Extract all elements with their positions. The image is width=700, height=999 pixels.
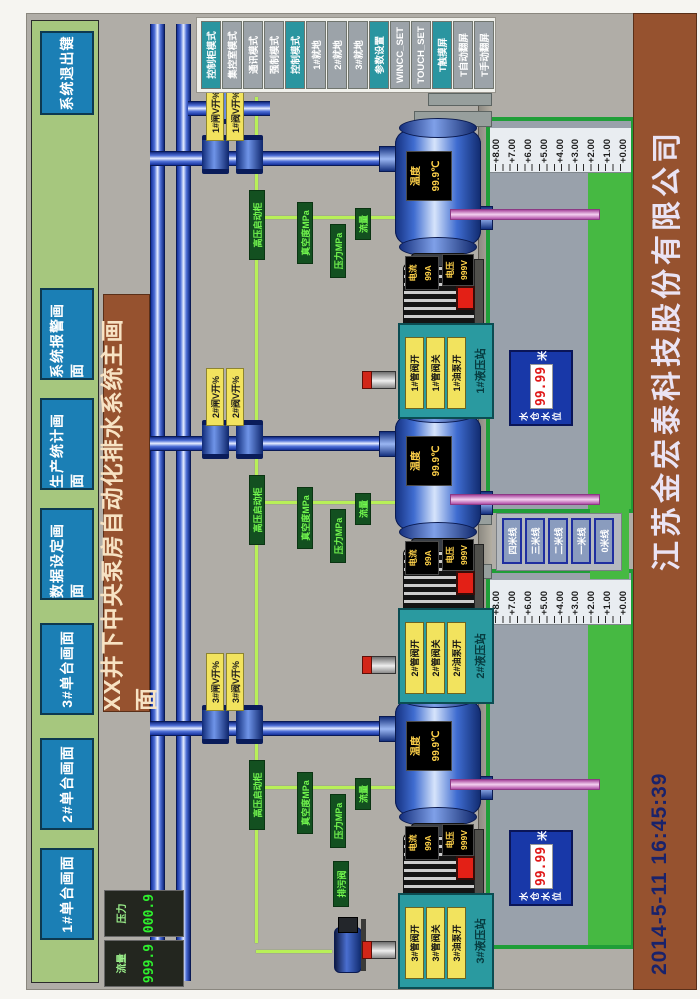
motor-status-lamp xyxy=(456,571,475,595)
instrument-label: 压力MPa xyxy=(330,509,346,563)
pump-temp-display: 温度99.9℃ xyxy=(406,721,452,771)
pump-discharge-nozzle xyxy=(379,431,396,457)
pump-temp-value: 99.9℃ xyxy=(427,437,447,485)
valve-open-label-b-3#: 3#阀V开% xyxy=(226,653,244,711)
pressure-gauge-value: 000.9 xyxy=(142,891,157,936)
pump-temp-value: 99.9℃ xyxy=(427,152,447,200)
mode-button-4[interactable]: 强制模式 xyxy=(264,21,284,89)
water-sump-2: +8.00+7.00+6.00+5.00+4.00+3.00+2.00+1.00… xyxy=(486,117,635,513)
level-scale: +8.00+7.00+6.00+5.00+4.00+3.00+2.00+1.00… xyxy=(490,128,631,173)
hydraulic-button-2#-2[interactable]: 2#管阀关 xyxy=(426,622,445,694)
hydraulic-station-title: 3#液压站 xyxy=(472,901,488,981)
scale-label: +5.00 xyxy=(540,130,550,163)
hydraulic-button-2#-3[interactable]: 2#油泵开 xyxy=(447,622,466,694)
readout-label-line1: 水仓 xyxy=(519,892,541,901)
instrument-label: 真空度MPa xyxy=(297,202,313,264)
hydraulic-station-1#: 1#管阀开1#管阀关1#油泵开1#液压站 xyxy=(398,323,494,419)
instrument-label: 真空度MPa xyxy=(297,772,313,834)
water-level-unit: 米 xyxy=(534,351,549,361)
level-scale-labels: +8.00+7.00+6.00+5.00+4.00+3.00+2.00+1.00… xyxy=(492,582,629,615)
instrument-label: 压力MPa xyxy=(330,794,346,848)
company-name: 江苏金宏泰科技股份有限公司 xyxy=(642,111,688,571)
pump-discharge-nozzle xyxy=(379,716,396,742)
mode-button-panel: 控制柜模式集控室模式通讯模式强制模式控制模式1#就地2#就地3#就地参数设置WI… xyxy=(196,17,496,93)
drain-signal-line xyxy=(256,950,332,953)
motor-current-value: 99A xyxy=(421,257,436,289)
level-line-button-2[interactable]: 三米线 xyxy=(525,518,545,564)
hydraulic-button-1#-2[interactable]: 1#管阀关 xyxy=(426,337,445,409)
scale-label: +4.00 xyxy=(556,582,566,615)
motor-status-lamp xyxy=(456,286,475,310)
mode-button-12[interactable]: T触摸屏 xyxy=(432,21,452,89)
suction-pipe-2# xyxy=(450,494,600,505)
menu-button-4[interactable]: 数据设定画面 xyxy=(40,508,94,600)
readout-label: 水仓水位 xyxy=(519,892,563,901)
motor-voltage-label: 电压 xyxy=(443,540,457,570)
drain-valve-label: 排污阀 xyxy=(333,861,349,907)
water-sump-1: +8.00+7.00+6.00+5.00+4.00+3.00+2.00+1.00… xyxy=(486,569,635,949)
pump-temp-label: 温度 xyxy=(407,722,427,770)
scale-label: +8.00 xyxy=(492,130,502,163)
scale-label: +0.00 xyxy=(619,130,629,163)
scale-label: +0.00 xyxy=(619,582,629,615)
datetime-display: 2014-5-11 16:45:39 xyxy=(648,715,682,975)
motor-current-label: 电流 xyxy=(406,257,421,289)
mode-button-6[interactable]: 1#就地 xyxy=(306,21,326,89)
drain-pump-motor xyxy=(338,917,358,933)
level-scale-labels: +8.00+7.00+6.00+5.00+4.00+3.00+2.00+1.00… xyxy=(492,130,629,163)
motor-current-display: 电流99A xyxy=(405,826,439,860)
menu-button-3[interactable]: 3#单台画面 xyxy=(40,623,94,715)
pressure-gauge: 压力 000.9 xyxy=(104,890,184,937)
vacuum-cylinder-3# xyxy=(362,941,396,959)
scale-label: +6.00 xyxy=(524,130,534,163)
instrument-label: 流量 xyxy=(355,493,371,525)
signal-drop-line xyxy=(256,216,396,219)
mode-button-11[interactable]: TOUCH_SET xyxy=(411,21,431,89)
motor-voltage-display: 电压999V xyxy=(442,254,474,286)
scale-label: +2.00 xyxy=(587,130,597,163)
level-line-button-1[interactable]: 四米线 xyxy=(502,518,522,564)
menu-button-5[interactable]: 生产统计画面 xyxy=(40,398,94,490)
scale-label: +2.00 xyxy=(587,582,597,615)
main-pump-2#[interactable]: 温度99.9℃ xyxy=(392,405,484,540)
branch-pipe-2# xyxy=(150,436,394,451)
signal-drop-line xyxy=(256,786,396,789)
pump-temp-label: 温度 xyxy=(407,152,427,200)
hydraulic-station-title: 1#液压站 xyxy=(472,331,488,411)
motor-voltage-value: 999V xyxy=(457,825,471,855)
instrument-label: 压力MPa xyxy=(330,224,346,278)
motor-voltage-label: 电压 xyxy=(443,255,457,285)
hmi-rotated-stage: 1#单台画面2#单台画面3#单台画面数据设定画面生产统计画面系统报警画面系统退出… xyxy=(0,0,700,999)
suction-pipe-1# xyxy=(450,209,600,220)
main-pump-1#[interactable]: 温度99.9℃ xyxy=(392,120,484,255)
valve-open-label-2#: 2#闸V开% xyxy=(206,368,224,426)
level-line-button-4[interactable]: 一米线 xyxy=(571,518,591,564)
valve-open-label-b-2#: 2#阀V开% xyxy=(226,368,244,426)
level-line-button-5[interactable]: 0米线 xyxy=(594,518,614,564)
hydraulic-button-3#-3[interactable]: 3#油泵开 xyxy=(447,907,466,979)
pump-temp-display: 温度99.9℃ xyxy=(406,151,452,201)
motor-current-label: 电流 xyxy=(406,827,421,859)
main-menu-bar: 1#单台画面2#单台画面3#单台画面数据设定画面生产统计画面系统报警画面系统退出… xyxy=(31,20,99,983)
readout-label-line1: 水仓 xyxy=(519,412,541,421)
flow-gauge-label: 流量 xyxy=(113,941,128,986)
instrument-label: 高压启动柜 xyxy=(249,760,265,830)
vacuum-cylinder-1# xyxy=(362,371,396,389)
main-pump-3#[interactable]: 温度99.9℃ xyxy=(392,690,484,825)
sump-wall-pillar xyxy=(428,93,492,106)
menu-button-1[interactable]: 1#单台画面 xyxy=(40,848,94,940)
mode-button-14[interactable]: T手动翻屏 xyxy=(474,21,494,89)
mode-button-10[interactable]: WINCC_SET xyxy=(390,21,410,89)
instrument-label: 真空度MPa xyxy=(297,487,313,549)
mode-button-5[interactable]: 控制模式 xyxy=(285,21,305,89)
drain-pump-body xyxy=(334,927,362,973)
valve-open-label-3#: 3#闸V开% xyxy=(206,653,224,711)
motor-voltage-label: 电压 xyxy=(443,825,457,855)
water-level-unit: 米 xyxy=(534,831,549,841)
water-level-value: 99.99 xyxy=(530,844,553,889)
water-level-readout: 水仓水位99.99米 xyxy=(509,830,573,906)
pressure-gauge-label: 压力 xyxy=(113,891,128,936)
scale-label: +3.00 xyxy=(571,582,581,615)
motor-voltage-value: 999V xyxy=(457,255,471,285)
mode-button-9[interactable]: 参数设置 xyxy=(369,21,389,89)
pump-discharge-nozzle xyxy=(379,146,396,172)
motor-current-display: 电流99A xyxy=(405,541,439,575)
branch-pipe-3# xyxy=(150,721,394,736)
motor-voltage-value: 999V xyxy=(457,540,471,570)
mode-button-13[interactable]: T自动翻屏 xyxy=(453,21,473,89)
hydraulic-button-2#-1[interactable]: 2#管阀开 xyxy=(405,622,424,694)
scale-label: +6.00 xyxy=(524,582,534,615)
vacuum-cylinder-2# xyxy=(362,656,396,674)
hydraulic-button-3#-1[interactable]: 3#管阀开 xyxy=(405,907,424,979)
drain-pump xyxy=(328,915,366,973)
motor-current-label: 电流 xyxy=(406,542,421,574)
instrument-label: 高压启动柜 xyxy=(249,190,265,260)
branch-pipe-1# xyxy=(150,151,394,166)
level-scale-ticks xyxy=(495,616,626,623)
hydraulic-button-1#-3[interactable]: 1#油泵开 xyxy=(447,337,466,409)
pump-temp-label: 温度 xyxy=(407,437,427,485)
motor-status-lamp xyxy=(456,856,475,880)
page-title: XX井下中央泵房自动化排水系统主画面 xyxy=(103,294,150,712)
scale-label: +5.00 xyxy=(540,582,550,615)
instrument-label: 流量 xyxy=(355,208,371,240)
mode-button-7[interactable]: 2#就地 xyxy=(327,21,347,89)
scale-label: +7.00 xyxy=(508,130,518,163)
readout-label-line2: 水位 xyxy=(541,892,563,901)
motor-voltage-display: 电压999V xyxy=(442,539,474,571)
motor-current-display: 电流99A xyxy=(405,256,439,290)
suction-pipe-3# xyxy=(450,779,600,790)
system-exit-button[interactable]: 系统退出键 xyxy=(40,31,94,115)
instrument-label: 高压启动柜 xyxy=(249,475,265,545)
pump-temp-value: 99.9℃ xyxy=(427,722,447,770)
mode-button-2[interactable]: 集控室模式 xyxy=(222,21,242,89)
discharge-main-pipe-2 xyxy=(176,24,191,981)
hydraulic-station-2#: 2#管阀开2#管阀关2#油泵开2#液压站 xyxy=(398,608,494,704)
pump-cap-right xyxy=(399,118,477,138)
hydraulic-button-1#-1[interactable]: 1#管阀开 xyxy=(405,337,424,409)
water-level-readout: 水仓水位99.99米 xyxy=(509,350,573,426)
scale-label: +3.00 xyxy=(571,130,581,163)
scale-label: +1.00 xyxy=(603,582,613,615)
signal-drop-line xyxy=(256,501,396,504)
scale-label: +7.00 xyxy=(508,582,518,615)
flow-gauge-value: 999.9 xyxy=(142,941,157,986)
mode-button-8[interactable]: 3#就地 xyxy=(348,21,368,89)
menu-button-2[interactable]: 2#单台画面 xyxy=(40,738,94,830)
level-line-panel: 四米线三米线二米线一米线0米线 xyxy=(496,513,622,571)
mode-button-3[interactable]: 通讯模式 xyxy=(243,21,263,89)
scale-label: +4.00 xyxy=(556,130,566,163)
sump-water-level xyxy=(588,173,631,509)
motor-current-value: 99A xyxy=(421,542,436,574)
level-line-button-3[interactable]: 二米线 xyxy=(548,518,568,564)
motor-current-value: 99A xyxy=(421,827,436,859)
water-level-value: 99.99 xyxy=(530,364,553,409)
readout-label-line2: 水位 xyxy=(541,412,563,421)
flow-gauge: 流量 999.9 xyxy=(104,940,184,987)
level-scale: +8.00+7.00+6.00+5.00+4.00+3.00+2.00+1.00… xyxy=(490,580,631,625)
scale-label: +1.00 xyxy=(603,130,613,163)
instrument-label: 流量 xyxy=(355,778,371,810)
readout-label: 水仓水位 xyxy=(519,412,563,421)
motor-voltage-display: 电压999V xyxy=(442,824,474,856)
mode-button-1[interactable]: 控制柜模式 xyxy=(201,21,221,89)
hydraulic-button-3#-2[interactable]: 3#管阀关 xyxy=(426,907,445,979)
level-scale-ticks xyxy=(495,164,626,171)
hydraulic-station-3#: 3#管阀开3#管阀关3#油泵开3#液压站 xyxy=(398,893,494,989)
pump-temp-display: 温度99.9℃ xyxy=(406,436,452,486)
hydraulic-station-title: 2#液压站 xyxy=(472,616,488,696)
menu-button-6[interactable]: 系统报警画面 xyxy=(40,288,94,380)
